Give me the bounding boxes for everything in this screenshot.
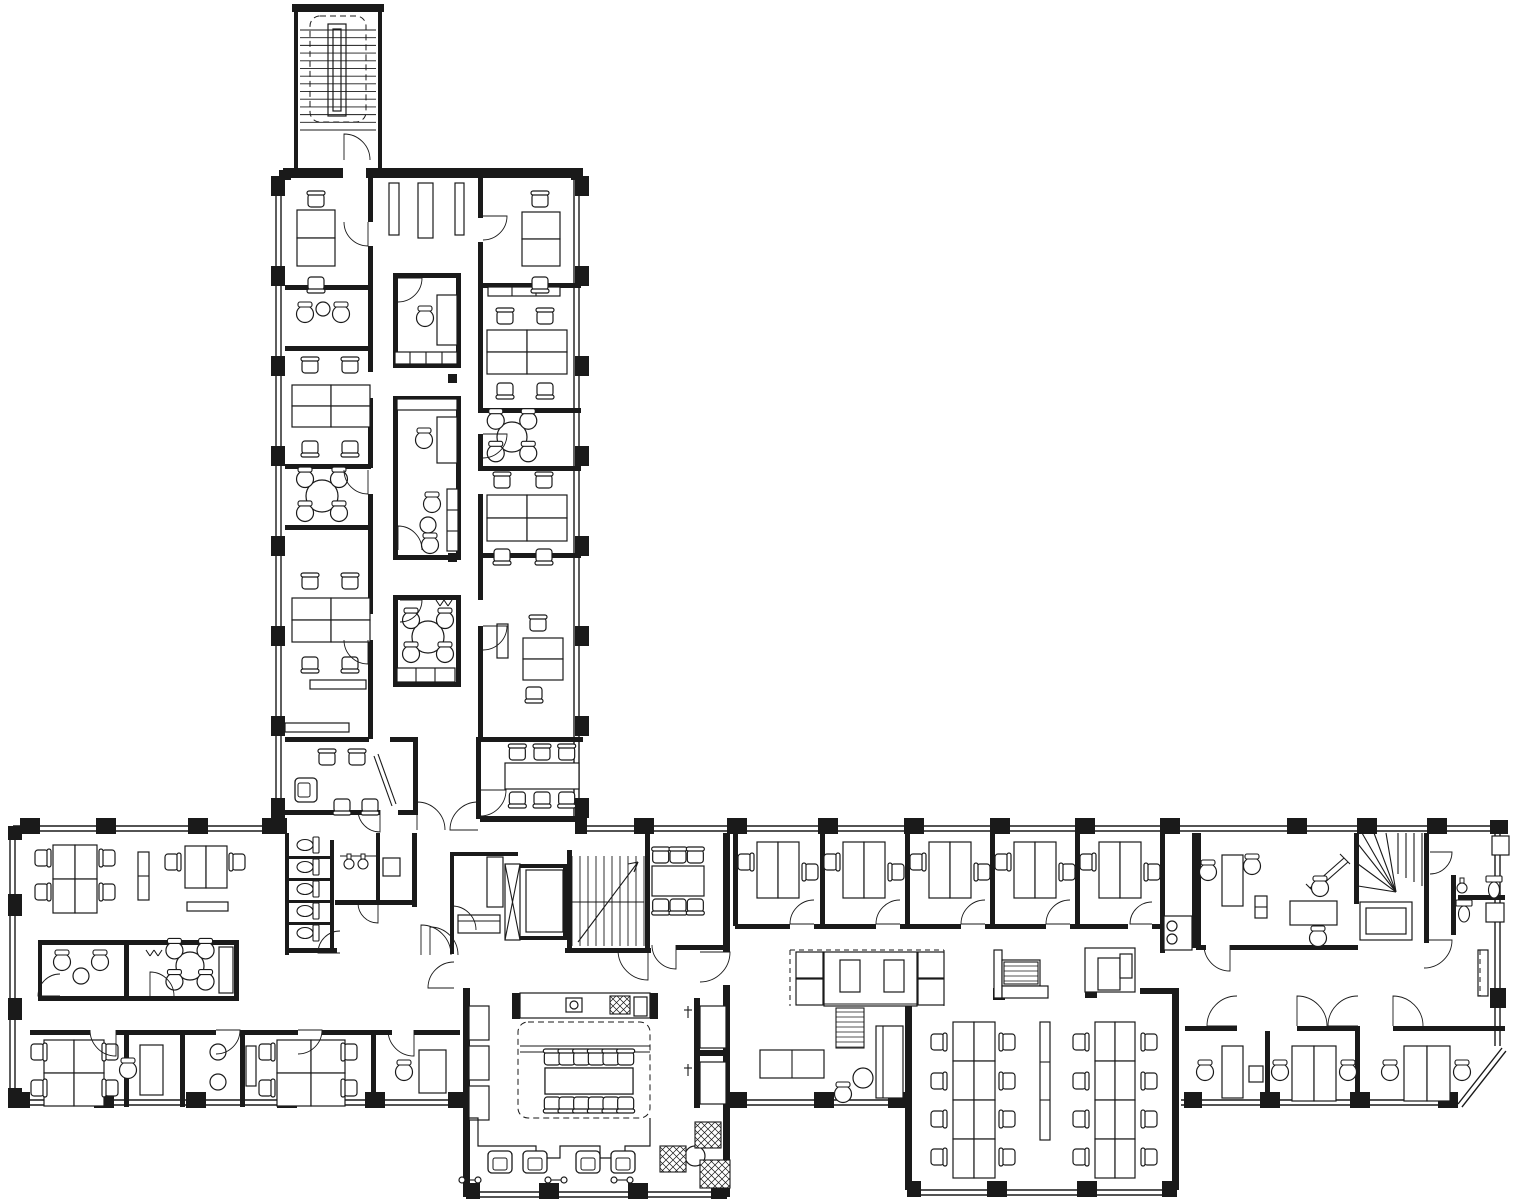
chair xyxy=(493,549,511,565)
chair-back xyxy=(652,911,670,915)
chair-seat xyxy=(362,799,378,812)
swivel-back xyxy=(425,492,439,497)
fixture xyxy=(447,489,458,551)
swivel-back xyxy=(418,306,432,311)
chair xyxy=(802,863,818,881)
wall xyxy=(478,466,581,471)
hatch-item xyxy=(610,996,630,1014)
desk xyxy=(53,845,75,879)
desk xyxy=(487,518,527,541)
armchair xyxy=(523,1151,547,1173)
chair-back xyxy=(686,847,704,851)
swivel-seat xyxy=(1197,1064,1214,1081)
swivel-chair xyxy=(487,409,504,430)
toilet-bowl xyxy=(297,906,313,917)
swivel-seat xyxy=(422,537,439,554)
wall xyxy=(271,176,285,196)
wall xyxy=(900,924,961,929)
chair-back xyxy=(102,1079,106,1097)
chair-back xyxy=(341,1043,345,1061)
chair-seat xyxy=(494,549,510,562)
chair-seat xyxy=(588,1052,604,1065)
wall xyxy=(478,178,483,218)
swivel-seat xyxy=(297,471,314,488)
chair xyxy=(229,853,245,871)
swivel-back xyxy=(489,441,503,446)
desk xyxy=(437,295,457,345)
wall xyxy=(907,1181,921,1197)
swivel-back xyxy=(1383,1060,1397,1065)
chair-seat xyxy=(302,576,318,589)
chair-seat xyxy=(342,576,358,589)
chair-back xyxy=(508,744,526,748)
fixture xyxy=(397,668,455,682)
chair-back xyxy=(496,308,514,312)
chair xyxy=(1080,853,1096,871)
floor-plan-canvas: Office building floor plan xyxy=(0,0,1523,1200)
wall xyxy=(378,10,382,168)
swivel-back xyxy=(1273,1060,1287,1065)
chair-back xyxy=(99,883,103,901)
desk xyxy=(1222,1046,1243,1098)
wall xyxy=(275,818,287,834)
swivel-chair xyxy=(330,501,347,522)
swivel-chair xyxy=(520,441,537,462)
chair-seat xyxy=(738,854,751,870)
swivel-chair xyxy=(835,1082,852,1103)
wall xyxy=(466,1183,480,1199)
chair-seat xyxy=(497,311,513,324)
toilet-tank xyxy=(1486,876,1502,882)
fixture xyxy=(383,858,400,876)
chair xyxy=(910,853,926,871)
fixture xyxy=(1120,954,1132,978)
chair-seat xyxy=(687,850,703,863)
swivel-back xyxy=(489,409,503,414)
chair xyxy=(1073,1148,1089,1166)
fixture xyxy=(458,915,500,933)
desk xyxy=(277,1040,311,1073)
chair-seat xyxy=(534,792,550,805)
swivel-chair xyxy=(54,950,71,971)
swivel-seat xyxy=(330,471,347,488)
chair-back xyxy=(1085,1148,1089,1166)
desk xyxy=(929,842,950,898)
desk xyxy=(331,385,370,406)
armchair xyxy=(488,1151,512,1173)
round-item xyxy=(561,1177,567,1183)
swivel-chair xyxy=(416,428,433,449)
chair xyxy=(1141,1033,1157,1051)
chair-seat xyxy=(536,549,552,562)
swivel-seat xyxy=(1382,1064,1399,1081)
wall xyxy=(727,1092,747,1108)
swivel-chair xyxy=(197,970,214,991)
chair xyxy=(341,441,359,457)
desk xyxy=(1120,842,1141,898)
chair xyxy=(1144,863,1160,881)
sink-basin xyxy=(358,859,368,869)
chair xyxy=(1073,1072,1089,1090)
wall xyxy=(186,1092,206,1108)
chair-back xyxy=(341,357,359,361)
chair-seat xyxy=(530,618,546,631)
chair-seat xyxy=(670,850,686,863)
chair-back xyxy=(271,1043,275,1061)
chair-seat xyxy=(574,1097,590,1110)
wall xyxy=(1185,1026,1237,1031)
fixture xyxy=(1492,836,1509,855)
sink-tap xyxy=(1460,878,1464,883)
toilet-tank xyxy=(313,837,319,853)
wall xyxy=(285,737,369,742)
desk-cluster xyxy=(929,842,971,898)
wall xyxy=(575,798,589,818)
chair-back xyxy=(493,561,511,565)
swivel-chair xyxy=(396,1060,413,1081)
chair xyxy=(35,849,51,867)
swivel-back xyxy=(1245,854,1259,859)
desk xyxy=(1095,1061,1115,1100)
wall xyxy=(234,940,239,1001)
chair xyxy=(341,657,359,673)
fixture xyxy=(1366,908,1406,934)
wall xyxy=(285,833,289,955)
toilet-tank xyxy=(313,881,319,897)
wall xyxy=(1260,1092,1280,1108)
desk xyxy=(311,1073,345,1106)
fixture xyxy=(700,1062,726,1104)
chair xyxy=(307,277,325,293)
chair xyxy=(1073,1110,1089,1128)
swivel-chair xyxy=(424,492,441,513)
swivel-back xyxy=(334,302,348,307)
round-item xyxy=(545,1177,551,1183)
wall xyxy=(393,682,459,687)
swivel-seat xyxy=(1454,1064,1471,1081)
fixture xyxy=(1486,903,1504,922)
wall xyxy=(567,850,572,953)
chair-back xyxy=(1141,1033,1145,1051)
desk-cluster xyxy=(523,638,563,680)
chair xyxy=(652,847,670,863)
round-item xyxy=(475,1177,481,1183)
swivel-chair xyxy=(403,642,420,663)
chair-seat xyxy=(559,792,575,805)
swivel-seat xyxy=(487,445,504,462)
wall xyxy=(365,1092,385,1108)
swivel-chair xyxy=(297,302,314,323)
desk xyxy=(527,352,567,374)
desk xyxy=(1115,1139,1135,1178)
chair xyxy=(686,899,704,915)
chair-seat xyxy=(559,1052,575,1065)
fixture xyxy=(187,902,228,911)
chair-seat xyxy=(1144,1149,1157,1165)
wall xyxy=(676,945,730,950)
swivel-seat xyxy=(416,432,433,449)
fixture xyxy=(796,979,823,1005)
chair xyxy=(533,792,551,808)
floor-plan-svg xyxy=(0,0,1523,1200)
hatch-item xyxy=(695,1122,721,1148)
desk xyxy=(778,842,799,898)
chair-back xyxy=(686,911,704,915)
desk xyxy=(1314,1046,1336,1101)
desk xyxy=(953,1061,974,1100)
chair-back xyxy=(99,849,103,867)
chair-seat xyxy=(931,1111,944,1127)
wall xyxy=(1265,1031,1270,1102)
fixture xyxy=(876,1026,903,1098)
swivel-back xyxy=(199,970,213,975)
chair-back xyxy=(999,1072,1003,1090)
desk xyxy=(331,598,370,620)
wall xyxy=(694,998,700,1108)
wall xyxy=(292,4,384,12)
swivel-seat xyxy=(520,445,537,462)
chair-back xyxy=(836,853,840,871)
desk-cluster xyxy=(292,385,370,427)
sink-tap xyxy=(361,854,365,859)
chair-back xyxy=(1085,1110,1089,1128)
wall xyxy=(1287,818,1307,834)
wall xyxy=(376,833,380,903)
chair-back xyxy=(348,749,366,753)
swivel-chair xyxy=(1197,1060,1214,1081)
fixture xyxy=(796,952,823,978)
wall xyxy=(1354,833,1359,904)
wall xyxy=(335,900,417,905)
chair-back xyxy=(922,853,926,871)
chair-back xyxy=(1092,853,1096,871)
chair xyxy=(318,749,336,765)
desk xyxy=(950,842,971,898)
desk-cluster xyxy=(297,210,335,266)
desk xyxy=(292,620,331,642)
chair-seat xyxy=(603,1052,619,1065)
chair-back xyxy=(1141,1148,1145,1166)
chair xyxy=(99,849,115,867)
wall xyxy=(735,924,790,929)
wall xyxy=(990,833,995,926)
chair-seat xyxy=(588,1097,604,1110)
chair-back xyxy=(558,804,576,808)
swivel-seat xyxy=(1340,1064,1357,1081)
wall xyxy=(240,1030,298,1035)
wall xyxy=(38,996,238,1001)
desk-cluster xyxy=(843,842,885,898)
wall xyxy=(287,900,330,903)
chair-back xyxy=(999,1110,1003,1128)
chair xyxy=(1059,863,1075,881)
desk-cluster xyxy=(292,598,370,642)
wall xyxy=(814,924,876,929)
chair-seat xyxy=(1002,1073,1015,1089)
swivel-back xyxy=(93,950,107,955)
chair xyxy=(307,191,325,207)
chair-seat xyxy=(977,864,990,880)
wall xyxy=(575,266,589,286)
chair-back xyxy=(617,1049,635,1053)
chair-back xyxy=(1085,1033,1089,1051)
wall xyxy=(1075,833,1080,926)
swivel-chair xyxy=(1454,1060,1471,1081)
wall xyxy=(650,993,658,1019)
round-item xyxy=(420,517,436,533)
desk xyxy=(1427,1046,1450,1101)
chair-seat xyxy=(603,1097,619,1110)
wall xyxy=(1140,988,1178,994)
chair-back xyxy=(802,863,806,881)
swivel-back xyxy=(521,441,535,446)
swivel-back xyxy=(55,950,69,955)
chair xyxy=(824,853,840,871)
chair-back xyxy=(43,1079,47,1097)
wall xyxy=(10,1092,30,1108)
chair xyxy=(35,883,51,901)
chair-seat xyxy=(653,899,669,912)
chair-seat xyxy=(349,752,365,765)
fixture xyxy=(526,870,563,932)
chair-back xyxy=(47,849,51,867)
chair xyxy=(259,1043,275,1061)
chair xyxy=(508,792,526,808)
swivel-chair xyxy=(197,938,214,959)
desk xyxy=(487,330,527,352)
swivel-back xyxy=(521,409,535,414)
wall xyxy=(30,1030,90,1035)
desk xyxy=(297,238,335,266)
chair-seat xyxy=(1062,864,1075,880)
chair xyxy=(888,863,904,881)
wall xyxy=(240,1035,245,1107)
round-item xyxy=(570,1001,578,1009)
wall xyxy=(476,737,481,819)
wall xyxy=(180,1035,185,1107)
chair xyxy=(931,1110,947,1128)
chair-back xyxy=(943,1072,947,1090)
swivel-back xyxy=(298,501,312,506)
chair-seat xyxy=(342,441,358,454)
desk xyxy=(523,638,563,659)
swivel-back xyxy=(298,302,312,307)
fixture xyxy=(1098,958,1120,990)
desk xyxy=(864,842,885,898)
round-item xyxy=(73,968,89,984)
chair xyxy=(995,853,1011,871)
chair xyxy=(102,1079,118,1097)
chair xyxy=(341,1043,357,1061)
desk xyxy=(277,1073,311,1106)
swivel-seat xyxy=(333,306,350,323)
chair-back xyxy=(1141,1110,1145,1128)
swivel-chair xyxy=(92,950,109,971)
swivel-chair xyxy=(333,302,350,323)
fixture xyxy=(389,183,399,235)
fixture xyxy=(397,399,457,410)
swivel-chair xyxy=(166,938,183,959)
swivel-back xyxy=(1313,876,1327,881)
desk-cluster xyxy=(437,295,457,345)
swivel-back xyxy=(1455,1060,1469,1065)
chair-back xyxy=(496,395,514,399)
wall xyxy=(271,266,285,286)
chair-seat xyxy=(1073,1073,1086,1089)
swivel-chair xyxy=(1200,860,1217,881)
chair xyxy=(558,792,576,808)
wall xyxy=(368,494,373,614)
desk xyxy=(140,1045,163,1095)
armchair xyxy=(295,778,317,802)
desk xyxy=(1095,1139,1115,1178)
wall xyxy=(904,818,924,834)
wall xyxy=(96,818,116,834)
wall xyxy=(628,1183,648,1199)
desk xyxy=(75,845,97,879)
wall xyxy=(283,168,343,178)
fixture xyxy=(219,947,233,993)
hatch-item xyxy=(660,1146,686,1172)
desk xyxy=(522,212,560,239)
chair xyxy=(99,883,115,901)
desk xyxy=(843,842,864,898)
wall xyxy=(322,1030,392,1035)
chair xyxy=(1073,1033,1089,1051)
sink-tap xyxy=(347,854,351,859)
fixture xyxy=(310,680,366,689)
chair xyxy=(999,1148,1015,1166)
chair xyxy=(1141,1072,1157,1090)
fixture xyxy=(469,1086,489,1120)
chair-seat xyxy=(509,792,525,805)
chair xyxy=(974,863,990,881)
armchair xyxy=(576,1151,600,1173)
wall xyxy=(520,936,567,940)
chair-back xyxy=(341,669,359,673)
chair-back xyxy=(531,191,549,195)
chair xyxy=(652,899,670,915)
round-item xyxy=(316,302,330,316)
desk xyxy=(292,385,331,406)
wall xyxy=(393,273,459,278)
wall xyxy=(575,536,589,556)
swivel-chair xyxy=(487,441,504,462)
conference-table xyxy=(545,1068,633,1094)
wall xyxy=(1172,988,1179,1190)
wall xyxy=(478,242,483,408)
swivel-back xyxy=(438,642,452,647)
swivel-seat xyxy=(417,310,434,327)
toilet-bowl xyxy=(297,840,313,851)
chair xyxy=(1141,1110,1157,1128)
wall xyxy=(116,1030,216,1035)
plan-background xyxy=(0,0,1523,1200)
chair-back xyxy=(301,669,319,673)
chair xyxy=(31,1079,47,1097)
chair-back xyxy=(301,453,319,457)
wall xyxy=(271,626,285,646)
chair-seat xyxy=(1144,1073,1157,1089)
hatch-frame xyxy=(660,1146,686,1172)
desk xyxy=(974,1022,995,1061)
chair-seat xyxy=(35,850,48,866)
wall xyxy=(1184,1092,1202,1108)
fixture xyxy=(700,1006,726,1048)
swivel-back xyxy=(332,501,346,506)
wall xyxy=(8,998,22,1020)
wall xyxy=(450,852,518,856)
